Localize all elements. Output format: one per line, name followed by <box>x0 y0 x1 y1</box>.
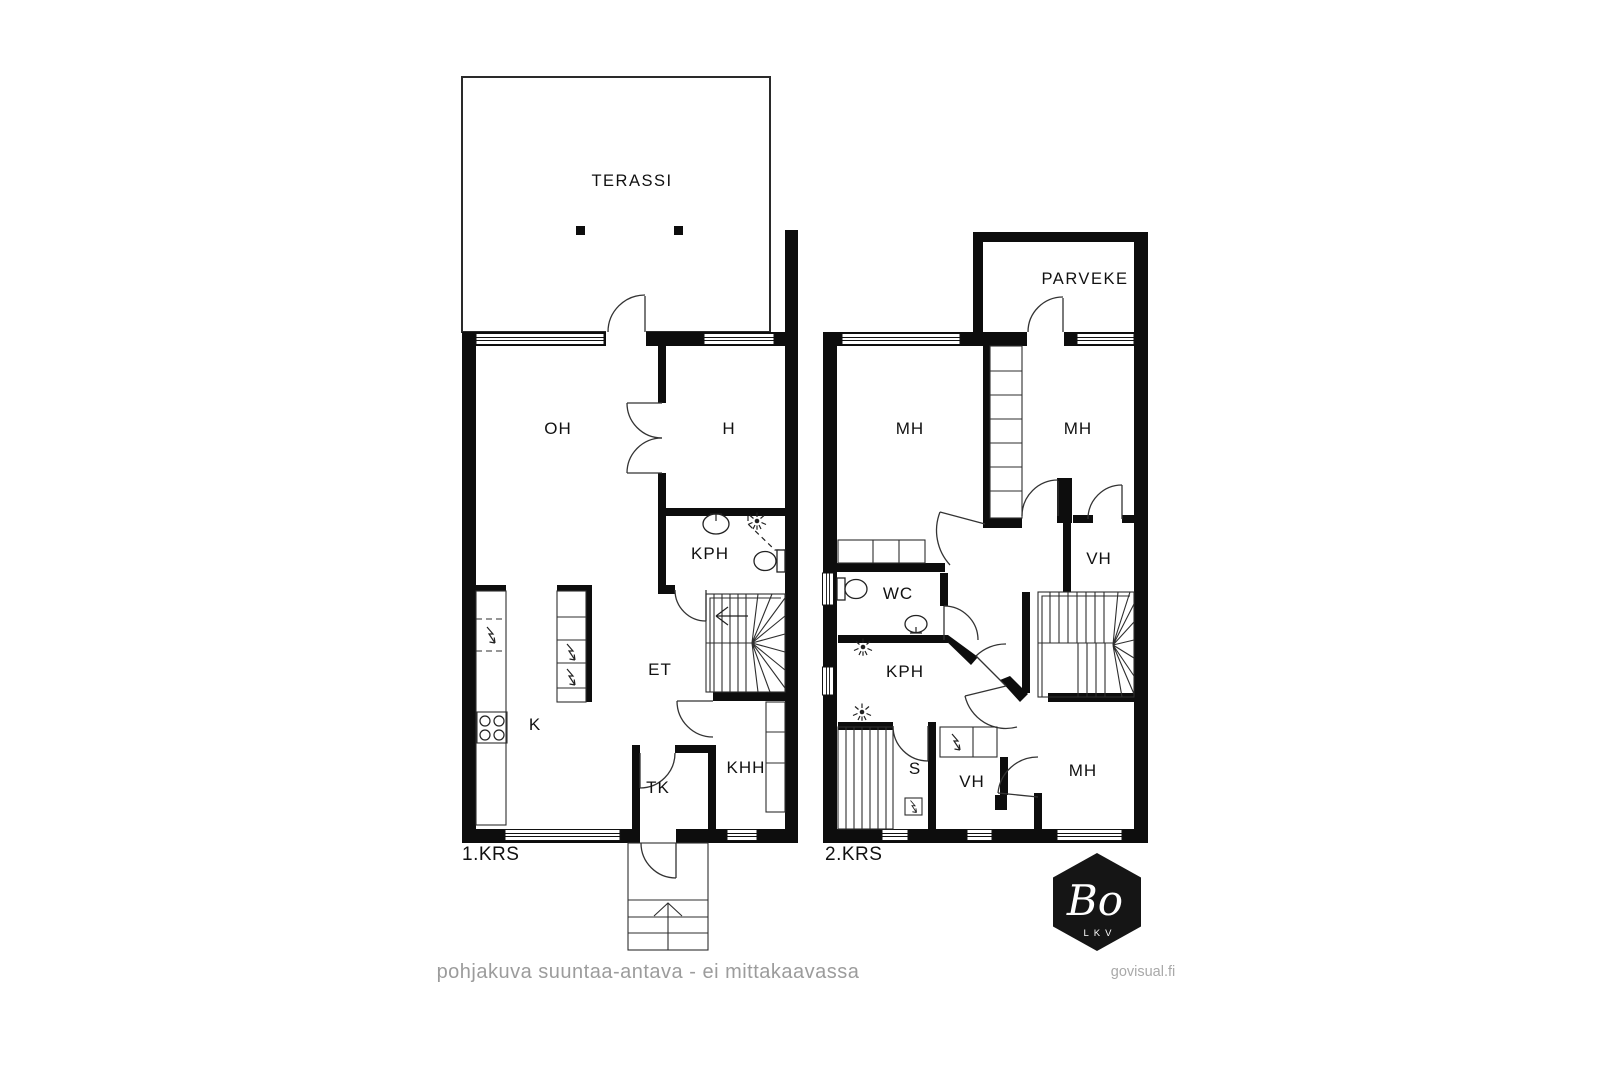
room-label-vh-upper: VH <box>1086 549 1112 568</box>
floor-plan-drawing: TERASSI OH H KPH ET K TK KHH 1.KRS <box>0 0 1600 1067</box>
appliance-bolt-icon <box>567 644 575 660</box>
floor2-title: 2.KRS <box>825 844 882 865</box>
wall <box>713 692 798 701</box>
room-label-wc: WC <box>883 584 913 603</box>
wall <box>940 573 948 606</box>
entrance-door <box>640 828 676 878</box>
door <box>1022 480 1058 516</box>
kitchen-counter <box>476 585 507 825</box>
wall <box>838 635 948 643</box>
door <box>606 295 646 347</box>
balcony-wall <box>973 232 1148 242</box>
brand-name: Bo <box>1066 876 1123 925</box>
wardrobe-closet <box>990 346 1022 518</box>
balcony-wall <box>973 232 983 332</box>
floor2-plan: PARVEKE MH MH VH WC KPH S VH MH 2.KRS <box>823 232 1149 865</box>
wall <box>983 518 1022 528</box>
wall <box>1073 515 1093 523</box>
washing-machine-icon <box>940 727 997 757</box>
appliance-bolt-icon <box>567 669 575 685</box>
disclaimer-text: pohjakuva suuntaa-antava - ei mittakaava… <box>437 961 860 983</box>
terrace-outline <box>462 77 770 332</box>
room-label-mh-left: MH <box>896 419 924 438</box>
floor1-plan: TERASSI OH H KPH ET K TK KHH 1.KRS <box>462 77 798 950</box>
door <box>944 606 978 640</box>
sauna-heater-icon <box>905 798 922 815</box>
wall <box>658 585 675 594</box>
room-label-kph: KPH <box>886 662 924 681</box>
door <box>675 590 706 621</box>
room-label-s: S <box>909 759 921 778</box>
utility-counter <box>766 702 785 812</box>
sauna-benches <box>838 727 893 829</box>
door <box>1088 485 1122 519</box>
room-label-tk: TK <box>646 778 670 797</box>
kitchen-island <box>557 585 592 702</box>
bo-lkv-logo: Bo LKV <box>1053 853 1141 951</box>
toilet-icon <box>837 578 845 600</box>
wall <box>837 563 945 572</box>
terrace-post <box>674 226 683 235</box>
wall <box>1022 592 1030 693</box>
floor1-title: 1.KRS <box>462 844 519 865</box>
wall <box>1034 793 1042 830</box>
toilet-icon <box>777 550 785 572</box>
shower-icon <box>853 704 871 721</box>
stairs <box>706 594 785 692</box>
wall <box>983 346 990 522</box>
entrance-steps <box>628 843 708 950</box>
wall <box>1122 515 1134 523</box>
wall <box>632 745 640 829</box>
stairs <box>1038 592 1134 697</box>
wall <box>940 635 978 665</box>
wall <box>462 332 476 843</box>
wall <box>928 722 936 830</box>
room-label-k: K <box>529 715 541 734</box>
bedroom-cabinet <box>838 540 925 563</box>
floor-plan-page: TERASSI OH H KPH ET K TK KHH 1.KRS <box>0 0 1600 1067</box>
shower-enclosure <box>748 516 785 550</box>
balcony-door <box>1027 297 1064 347</box>
door <box>965 686 1017 728</box>
door <box>677 701 713 737</box>
wall <box>1134 232 1148 843</box>
appliance-bolt-icon <box>487 627 495 643</box>
room-label-khh: KHH <box>727 758 766 777</box>
bathroom-fixtures <box>703 513 785 573</box>
wall <box>785 230 798 843</box>
room-label-et: ET <box>648 660 672 679</box>
wall <box>658 508 798 516</box>
wall <box>658 346 666 403</box>
stairs-direction-arrow-icon <box>716 607 748 625</box>
watermark-text: govisual.fi <box>1111 964 1175 980</box>
wall <box>708 745 716 829</box>
room-label-mh-right: MH <box>1064 419 1092 438</box>
room-label-kph: KPH <box>691 544 729 563</box>
wall <box>658 516 666 586</box>
wall <box>1057 478 1072 523</box>
room-label-vh-lower: VH <box>959 772 985 791</box>
wall <box>1063 523 1071 592</box>
terrace-post <box>576 226 585 235</box>
wall <box>995 795 1007 810</box>
room-label-h: H <box>722 419 735 438</box>
sauna-door <box>893 726 928 761</box>
brand-subtitle: LKV <box>1084 928 1117 939</box>
room-label-oh: OH <box>544 419 572 438</box>
room-label-terassi: TERASSI <box>591 172 672 190</box>
room-label-parveke: PARVEKE <box>1042 270 1129 288</box>
double-door <box>627 403 662 473</box>
door <box>937 512 985 565</box>
room-label-mh-lower: MH <box>1069 761 1097 780</box>
